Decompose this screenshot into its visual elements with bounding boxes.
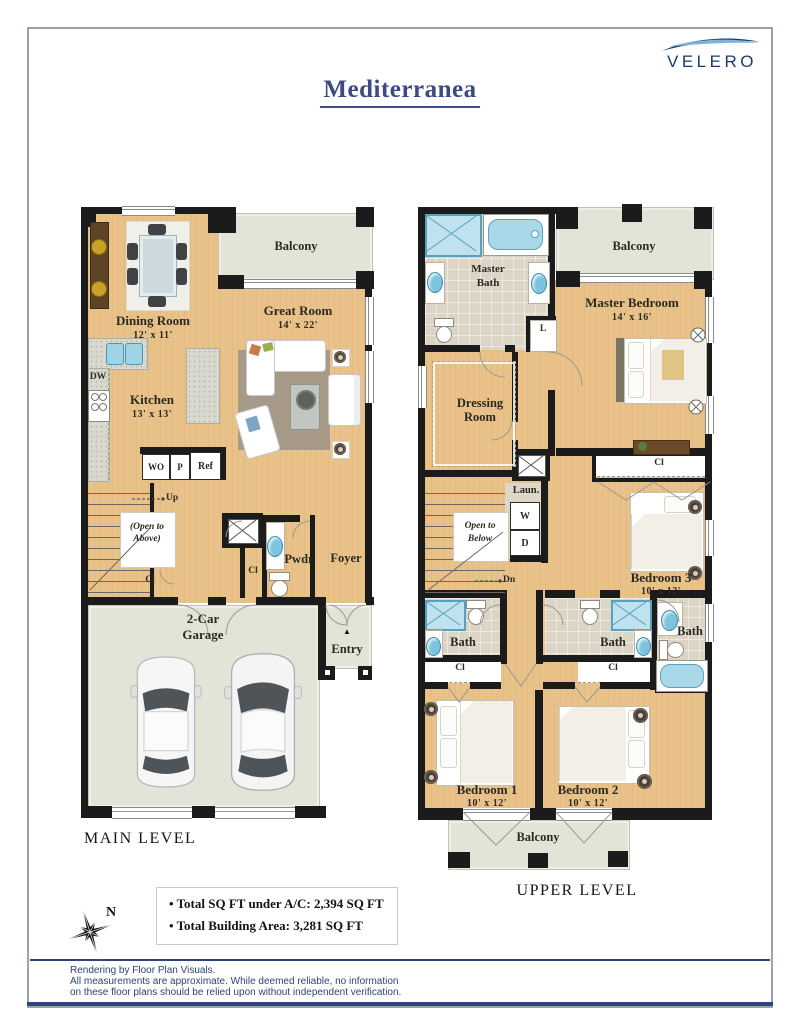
coffee-table-tray	[296, 390, 316, 410]
pantry: P	[170, 454, 190, 480]
entry-arrow-icon: ▲	[331, 628, 363, 637]
car	[222, 648, 304, 796]
balcony-pillar	[218, 275, 244, 289]
room-label-garage-1: 2-Car	[153, 612, 253, 627]
headboard	[616, 338, 624, 402]
dryer-label: D	[521, 538, 528, 549]
speaker	[334, 443, 346, 455]
wall	[612, 808, 712, 820]
room-label-dressing-1: Dressing	[440, 396, 520, 410]
brand-name: VELERO	[667, 52, 757, 71]
elevator-cab	[228, 519, 259, 544]
wall	[548, 390, 555, 456]
room-label-foyer: Foyer	[322, 551, 370, 565]
label-cl-master: Cl	[647, 458, 671, 469]
balcony-pillar	[556, 207, 578, 229]
wall	[81, 207, 88, 818]
wall-oven: WO	[142, 454, 170, 480]
balcony-pillar	[356, 207, 374, 227]
room-label-dining: Dining Room	[93, 314, 213, 329]
room-label-master-bath-1: Master	[458, 263, 518, 275]
room-dims-bedroom2: 10' x 12'	[538, 798, 638, 809]
room-dims-bedroom1: 10' x 12'	[437, 798, 537, 809]
room-label-balcony-upper: Balcony	[584, 239, 684, 253]
room-label-pwdr: Pwdr	[277, 552, 321, 566]
summary-text-2: Total Building Area: 3,281 SQ FT	[177, 918, 363, 933]
burner	[99, 403, 107, 411]
room-label-balcony: Balcony	[246, 239, 346, 253]
label-cl-bed2: Cl	[601, 663, 625, 674]
wall	[81, 597, 178, 605]
wall	[418, 470, 518, 477]
dryer: D	[510, 530, 540, 556]
label-cl-bed1: Cl	[448, 663, 472, 674]
footer-line-2: All measurements are approximate. While …	[70, 976, 690, 987]
label-up: Up	[166, 493, 190, 504]
wall	[530, 808, 556, 820]
balcony-pillar	[208, 207, 236, 233]
wall	[366, 597, 374, 605]
dining-chair	[148, 296, 166, 307]
balcony-pillar	[448, 852, 470, 868]
room-dims-bedroom3: 10' x 12'	[611, 586, 711, 597]
pillow	[440, 706, 457, 736]
balcony-slider-door	[580, 273, 694, 283]
wall	[592, 478, 712, 482]
wall	[505, 345, 515, 352]
summary-line-1: • Total SQ FT under A/C: 2,394 SQ FT	[169, 897, 389, 912]
label-cl-understair: Cl	[138, 575, 162, 586]
blanket	[460, 701, 512, 783]
footer-bottom-border	[27, 1002, 773, 1006]
burner	[91, 403, 99, 411]
wall	[500, 590, 507, 664]
bullet-icon: •	[169, 896, 174, 911]
room-label-bath-left: Bath	[443, 635, 483, 649]
footer-line-3: on these floor plans should be relied up…	[70, 987, 690, 998]
footer-separator	[30, 959, 770, 961]
wall	[470, 682, 501, 689]
label-open-above-1: (Open to	[120, 522, 174, 533]
pillow	[628, 371, 644, 398]
dining-chair	[176, 268, 187, 285]
speaker	[424, 702, 438, 716]
room-label-bedroom3: Bedroom 3	[611, 571, 711, 586]
porch-pillar-cap	[363, 670, 368, 675]
room-dims-kitchen: 13' x 13'	[112, 409, 192, 420]
sideboard-bowl	[91, 239, 107, 255]
wall	[543, 682, 575, 689]
burner	[99, 393, 107, 401]
label-dw: DW	[86, 372, 110, 383]
burner	[91, 393, 99, 401]
kitchen-sink	[106, 343, 124, 365]
dresser-plant	[638, 442, 647, 451]
toilet-bowl	[436, 326, 452, 343]
porch-pillar-cap	[325, 670, 330, 675]
kitchen-counter	[88, 368, 110, 482]
label-open-below-1: Open to	[453, 521, 507, 532]
balcony-door	[463, 809, 530, 821]
pillow	[628, 740, 645, 768]
dining-chair	[127, 268, 138, 285]
room-dims-dining: 12' x 11'	[93, 330, 213, 341]
toilet-bowl	[667, 642, 684, 658]
wall	[365, 285, 372, 297]
wall	[192, 806, 215, 818]
room-label-master-bedroom: Master Bedroom	[572, 296, 692, 311]
footer-line-1: Rendering by Floor Plan Visuals.	[70, 965, 690, 976]
dining-chair	[176, 243, 187, 260]
wall	[510, 555, 548, 562]
room-label-balcony-lower: Balcony	[488, 830, 588, 844]
wall	[81, 806, 112, 818]
speaker	[334, 351, 346, 363]
wall	[418, 808, 463, 820]
speaker	[424, 770, 438, 784]
sink	[531, 273, 547, 294]
wall	[81, 207, 122, 214]
room-label-entry: Entry	[323, 642, 371, 656]
room-dims-master: 14' x 16'	[572, 312, 692, 323]
compass-rose: N	[64, 898, 122, 960]
room-label-dressing-2: Room	[440, 410, 520, 424]
balcony-pillar	[694, 207, 712, 229]
bathtub	[660, 664, 704, 688]
refrigerator-label: Ref	[198, 461, 213, 472]
wall	[545, 590, 575, 598]
window	[418, 366, 427, 408]
toilet-bowl	[582, 608, 598, 625]
wall	[365, 403, 372, 603]
main-level-title: MAIN LEVEL	[84, 830, 284, 848]
window	[705, 520, 714, 556]
balcony-pillar	[622, 204, 642, 222]
room-label-bath-right: Bath	[670, 624, 710, 638]
label-cl-hall: Cl	[241, 566, 265, 577]
pillow	[440, 738, 457, 768]
wall-oven-label: WO	[148, 462, 164, 472]
label-linen: L	[531, 324, 555, 335]
wall	[208, 597, 226, 605]
window	[705, 297, 714, 343]
blanket	[559, 707, 626, 781]
upper-cabinet-line	[108, 368, 110, 480]
speaker	[688, 500, 702, 514]
wall	[536, 590, 543, 664]
window	[365, 297, 374, 345]
balcony-pillar	[556, 271, 580, 287]
shower	[425, 214, 482, 257]
bullet-icon: •	[169, 918, 174, 933]
wall	[418, 207, 425, 815]
throw-blanket	[662, 350, 684, 380]
room-label-bedroom1: Bedroom 1	[437, 783, 537, 798]
wall	[418, 682, 448, 689]
floor-plan-page: Mediterranea VELERO	[0, 0, 800, 1035]
car	[127, 652, 205, 792]
dining-table	[139, 235, 177, 297]
room-label-bath-mid: Bath	[593, 635, 633, 649]
page-header: Mediterranea	[0, 76, 800, 108]
brand-logo: VELERO	[658, 34, 766, 76]
wall	[425, 345, 480, 352]
speaker	[633, 708, 648, 723]
label-dn: Dn	[503, 575, 527, 586]
label-open-below-2: Below	[453, 534, 507, 545]
wall	[600, 682, 653, 689]
label-laundry: Laun.	[506, 485, 546, 497]
label-open-above-2: Above)	[120, 534, 174, 545]
summary-text-1: Total SQ FT under A/C: 2,394 SQ FT	[177, 896, 384, 911]
page-title: Mediterranea	[320, 76, 479, 108]
toilet-bowl	[271, 580, 288, 597]
washer: W	[510, 502, 540, 530]
balcony-pillar	[528, 853, 548, 868]
wall	[295, 806, 326, 818]
upper-level-title: UPPER LEVEL	[487, 882, 667, 900]
sideboard-bowl	[91, 281, 107, 297]
room-label-kitchen: Kitchen	[112, 393, 192, 408]
summary-line-2: • Total Building Area: 3,281 SQ FT	[169, 919, 389, 934]
sink	[636, 637, 651, 656]
room-label-great: Great Room	[238, 304, 358, 319]
dining-chair	[127, 243, 138, 260]
shower	[611, 600, 652, 631]
sink	[426, 637, 441, 656]
compass-north-label: N	[106, 905, 116, 920]
refrigerator: Ref	[190, 452, 221, 480]
room-label-master-bath-2: Bath	[458, 277, 518, 289]
tub-faucet	[531, 230, 539, 238]
shower	[425, 600, 466, 631]
window	[122, 206, 175, 216]
sink	[427, 272, 443, 293]
elevator-cab	[518, 455, 546, 477]
toilet-bowl	[468, 608, 484, 625]
entry-porch-floor	[322, 605, 372, 669]
balcony-pillar	[608, 851, 628, 867]
wall	[256, 597, 326, 605]
footer-disclaimer: Rendering by Floor Plan Visuals. All mea…	[70, 965, 690, 998]
garage-door	[215, 807, 295, 819]
blanket	[631, 514, 702, 569]
dining-chair	[148, 224, 166, 235]
garage-door	[112, 807, 192, 819]
speaker	[637, 774, 652, 789]
wall	[418, 207, 558, 214]
balcony-door	[556, 809, 612, 821]
kitchen-sink	[125, 343, 143, 365]
pillow	[628, 342, 644, 369]
room-dims-great: 14' x 22'	[238, 320, 358, 331]
window	[365, 351, 374, 403]
balcony-slider-door	[244, 279, 356, 289]
armchair	[328, 374, 361, 426]
room-label-bedroom2: Bedroom 2	[538, 783, 638, 798]
pantry-label: P	[177, 462, 183, 472]
summary-box: • Total SQ FT under A/C: 2,394 SQ FT • T…	[156, 887, 398, 945]
room-label-garage-2: Garage	[153, 628, 253, 643]
washer-label: W	[520, 511, 530, 522]
